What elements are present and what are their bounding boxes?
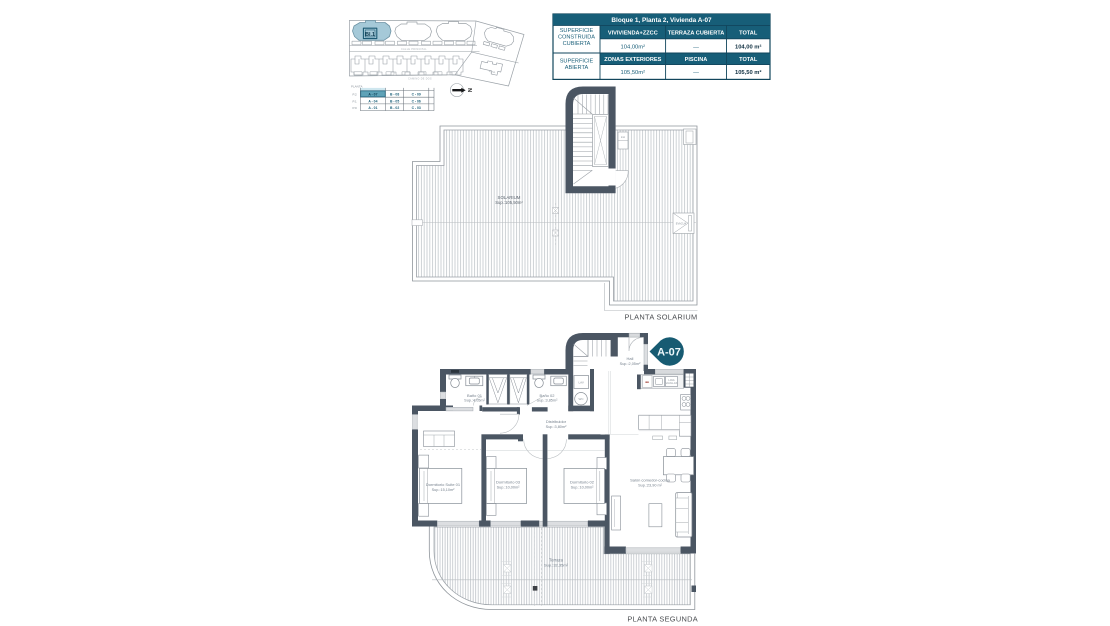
svg-text:Sup.:15,10m²: Sup.:15,10m² — [432, 488, 456, 492]
svg-text:Distribuidor: Distribuidor — [546, 419, 567, 424]
svg-text:Sup.:3,85m²: Sup.:3,85m² — [537, 399, 558, 403]
svg-text:—: — — [693, 70, 699, 76]
svg-text:CUBIERTA: CUBIERTA — [563, 41, 591, 47]
svg-text:C - 06: C - 06 — [412, 99, 421, 103]
svg-text:■■: ■■ — [645, 380, 649, 384]
svg-text:CONSTRUIDA: CONSTRUIDA — [558, 34, 595, 40]
svg-text:P.2: P.2 — [353, 93, 357, 97]
svg-text:Dormitorio 02: Dormitorio 02 — [570, 480, 595, 485]
svg-text:Sup.:10,00m²: Sup.:10,00m² — [497, 485, 521, 489]
svg-text:105,50m²: 105,50m² — [621, 70, 646, 76]
svg-text:Sup.:3,80m²: Sup.:3,80m² — [546, 425, 567, 429]
svg-text:104,00 m²: 104,00 m² — [735, 43, 761, 50]
svg-text:B - 08: B - 08 — [390, 93, 399, 97]
svg-text:105,50 m²: 105,50 m² — [735, 69, 761, 76]
svg-text:ZONA: ZONA — [489, 70, 497, 75]
svg-text:Sup.:2,05m²: Sup.:2,05m² — [620, 362, 641, 366]
svg-text:A - 04: A - 04 — [368, 99, 377, 103]
svg-text:VIVIVIENDA+ZZCC: VIVIVIENDA+ZZCC — [608, 30, 658, 36]
svg-text:PLANTA SOLARIUM: PLANTA SOLARIUM — [625, 313, 698, 322]
svg-text:Sup.:4,05m²: Sup.:4,05m² — [464, 399, 485, 403]
svg-text:C - 03: C - 03 — [412, 106, 421, 110]
svg-text:A-07: A-07 — [657, 346, 681, 358]
svg-text:ABIERTA: ABIERTA — [565, 65, 589, 71]
svg-text:C - 09: C - 09 — [412, 93, 421, 97]
svg-text:Hall: Hall — [627, 356, 634, 361]
svg-text:Dormitorio 03: Dormitorio 03 — [496, 480, 521, 485]
svg-text:inst: inst — [621, 135, 625, 139]
svg-text:A - 07: A - 07 — [368, 93, 377, 97]
svg-text:B - 02: B - 02 — [390, 106, 399, 110]
svg-text:A - 01: A - 01 — [368, 106, 377, 110]
svg-text:P.0: P.0 — [353, 106, 357, 110]
svg-text:EVACUA: EVACUA — [676, 222, 687, 226]
svg-text:P.1: P.1 — [353, 99, 357, 103]
svg-text:Sup.:23,90 m²: Sup.:23,90 m² — [638, 483, 663, 487]
svg-text:TOTAL: TOTAL — [739, 57, 758, 63]
svg-text:Bloque 1, Planta 2, Vivienda A: Bloque 1, Planta 2, Vivienda A-07 — [611, 17, 712, 24]
svg-text:VAJILLAS: VAJILLAS — [666, 381, 678, 385]
svg-text:TOTAL: TOTAL — [739, 30, 758, 36]
svg-text:B - 05: B - 05 — [390, 99, 399, 103]
svg-text:Baño 01: Baño 01 — [467, 393, 483, 398]
svg-text:SUPERFICIE: SUPERFICIE — [560, 28, 594, 34]
svg-text:SUPERFICIE: SUPERFICIE — [560, 58, 594, 64]
svg-text:—: — — [693, 44, 699, 50]
svg-text:Bl.1: Bl.1 — [365, 32, 375, 38]
svg-text:LAV: LAV — [578, 381, 583, 385]
svg-text:TERRAZA CUBIERTA: TERRAZA CUBIERTA — [668, 30, 725, 36]
svg-text:Salón comedor-cocina: Salón comedor-cocina — [630, 478, 671, 483]
svg-text:CAMINO DE DOS: CAMINO DE DOS — [408, 78, 432, 81]
svg-text:ZONAS EXTERIORES: ZONAS EXTERIORES — [604, 57, 661, 63]
svg-text:CALLE PRINCIPAL: CALLE PRINCIPAL — [401, 48, 427, 51]
svg-text:Sup.:32,35m²: Sup.:32,35m² — [544, 563, 569, 568]
svg-text:Dormitorio Suite 01: Dormitorio Suite 01 — [426, 482, 461, 487]
svg-text:PISCINA: PISCINA — [685, 57, 708, 63]
svg-text:Sup.:105,50m²: Sup.:105,50m² — [495, 200, 523, 205]
svg-text:WC: WC — [579, 397, 585, 401]
svg-text:Sup.:10,00m²: Sup.:10,00m² — [571, 485, 595, 489]
svg-text:N: N — [466, 88, 472, 92]
svg-text:104,00m²: 104,00m² — [621, 44, 646, 50]
svg-text:PLANTA SEGUNDA: PLANTA SEGUNDA — [627, 615, 698, 624]
